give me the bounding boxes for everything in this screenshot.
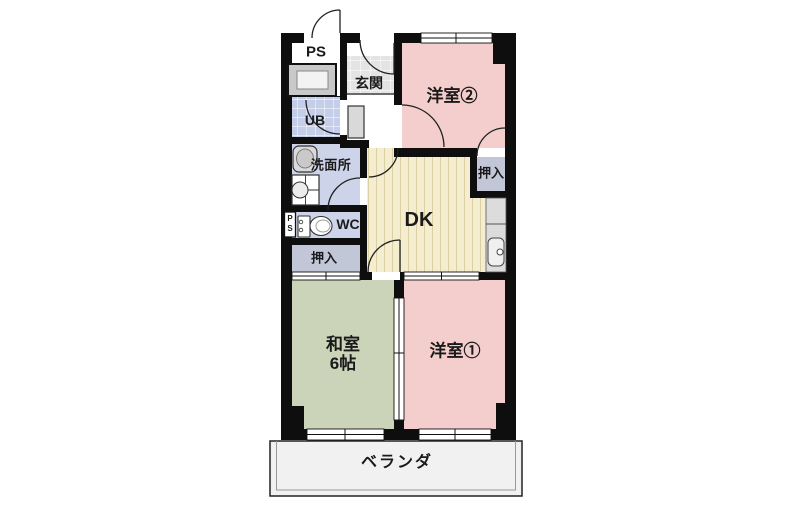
wall-top-b — [340, 33, 360, 43]
shoe-cabinet — [348, 106, 364, 138]
label-washitsu-size: 6帖 — [326, 354, 360, 373]
floorplan-drawing — [0, 0, 800, 519]
meter-box-panel — [297, 71, 328, 89]
label-washitsu-name: 和室 — [326, 335, 360, 354]
wall-washroom-wc — [281, 205, 367, 212]
wall-washitsu-yoshitsu1-b — [394, 420, 404, 429]
ps-door-opening — [304, 33, 340, 43]
wall-wc-closet — [281, 238, 367, 245]
wall-dk-yoshitsu1-stub — [479, 272, 516, 280]
wall-closet2-bottom — [470, 191, 516, 198]
wall-bottom-b — [384, 429, 419, 440]
label-ub: UB — [305, 113, 325, 129]
wall-top-c — [394, 33, 421, 43]
toilet-tank — [298, 216, 310, 237]
washer-drain — [292, 182, 308, 198]
label-oshiire-hall: 押入 — [311, 252, 337, 267]
wall-dk-washitsu-stub-a — [360, 272, 372, 280]
label-ps-shaft: PS — [286, 214, 295, 234]
wall-closet2-left — [470, 148, 477, 198]
wall-washroom-dk-a — [360, 144, 367, 178]
wall-washitsu-yoshitsu1-a — [394, 280, 404, 298]
floorplan-canvas: PS 玄関 洋室② UB 洗面所 WC PS 押入 押入 DK 和室 6帖 洋室… — [0, 0, 800, 519]
label-washitsu: 和室 6帖 — [326, 335, 360, 373]
wall-right — [505, 33, 516, 440]
wall-dk-washitsu-stub-b — [400, 272, 404, 280]
label-dk: DK — [405, 209, 434, 231]
wall-yoshitsu2-bottom — [394, 148, 477, 157]
wall-yoshitsu2-left — [394, 43, 402, 105]
label-veranda: ベランダ — [361, 454, 433, 472]
label-yoshitsu2: 洋室② — [427, 86, 478, 105]
entrance-door-opening — [360, 33, 394, 43]
toilet-bowl — [310, 217, 332, 236]
closet-opening — [477, 148, 505, 157]
wall-ub-hall-a — [340, 43, 347, 100]
pillar-top-right — [493, 43, 516, 64]
label-yoshitsu1: 洋室① — [430, 341, 481, 360]
kitchen-sink-drain — [497, 249, 503, 255]
wall-yoshitsu2-bottom-end — [505, 148, 516, 157]
label-senmenjo: 洗面所 — [311, 159, 352, 174]
wall-bottom-c — [491, 429, 516, 440]
dk-washitsu-doorway — [372, 272, 400, 280]
label-oshiire-yoshitsu2: 押入 — [478, 167, 504, 182]
label-genkan: 玄関 — [355, 76, 383, 92]
wall-ub-washroom — [281, 137, 347, 144]
label-wc: WC — [336, 217, 359, 233]
wall-top-a — [281, 33, 304, 43]
label-ps-top: PS — [306, 45, 326, 62]
wall-bottom-a — [281, 429, 307, 440]
